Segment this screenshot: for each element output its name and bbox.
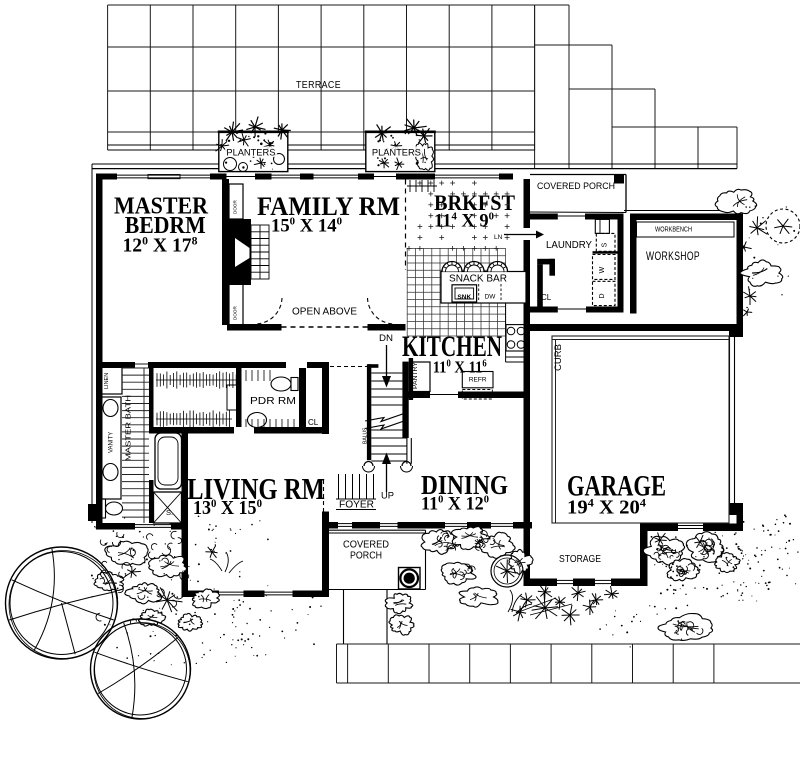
svg-text:PDR RM: PDR RM	[250, 396, 296, 407]
svg-text:CL: CL	[308, 418, 319, 427]
svg-text:DOOR: DOOR	[233, 200, 238, 214]
svg-text:120 X 178: 120 X 178	[123, 234, 198, 257]
svg-text:150 X 140: 150 X 140	[271, 216, 342, 237]
svg-text:VANITY: VANITY	[109, 432, 115, 453]
svg-text:TERRACE: TERRACE	[296, 79, 341, 91]
svg-text:DOOR: DOOR	[233, 306, 238, 320]
svg-text:D: D	[599, 293, 606, 298]
svg-text:DN: DN	[379, 333, 393, 344]
svg-text:DW: DW	[485, 294, 497, 301]
svg-text:LINEN: LINEN	[104, 373, 110, 389]
svg-text:W: W	[599, 266, 606, 273]
svg-text:FOYER: FOYER	[339, 500, 374, 511]
svg-text:S.: S.	[166, 508, 173, 517]
svg-text:BALUS: BALUS	[363, 427, 369, 444]
svg-text:COVERED: COVERED	[343, 540, 389, 551]
svg-text:PLANTERS: PLANTERS	[372, 148, 421, 159]
svg-text:SNK: SNK	[457, 294, 471, 301]
svg-text:CL: CL	[541, 293, 552, 302]
svg-text:130 X 150: 130 X 150	[193, 496, 262, 519]
svg-text:SNACK BAR: SNACK BAR	[449, 274, 507, 285]
svg-text:MASTER BATH: MASTER BATH	[126, 395, 133, 461]
svg-text:REFR: REFR	[469, 377, 487, 384]
svg-text:WORKBENCH: WORKBENCH	[655, 225, 692, 234]
svg-text:110 X 120: 110 X 120	[421, 494, 489, 515]
svg-text:LAUNDRY: LAUNDRY	[546, 239, 592, 251]
svg-text:COVERED PORCH: COVERED PORCH	[537, 181, 615, 192]
svg-text:PLANTERS: PLANTERS	[226, 148, 275, 159]
svg-text:OPEN ABOVE: OPEN ABOVE	[292, 307, 357, 318]
svg-text:CURB: CURB	[553, 344, 564, 371]
svg-text:110 X 116: 110 X 116	[433, 358, 487, 377]
svg-text:STORAGE: STORAGE	[559, 554, 601, 565]
svg-text:WORKSHOP: WORKSHOP	[646, 249, 700, 263]
svg-text:194 X 204: 194 X 204	[567, 496, 646, 519]
svg-text:UP: UP	[381, 491, 394, 502]
svg-text:LN: LN	[494, 234, 503, 241]
svg-text:S: S	[602, 242, 609, 247]
svg-text:PORCH: PORCH	[350, 551, 382, 562]
